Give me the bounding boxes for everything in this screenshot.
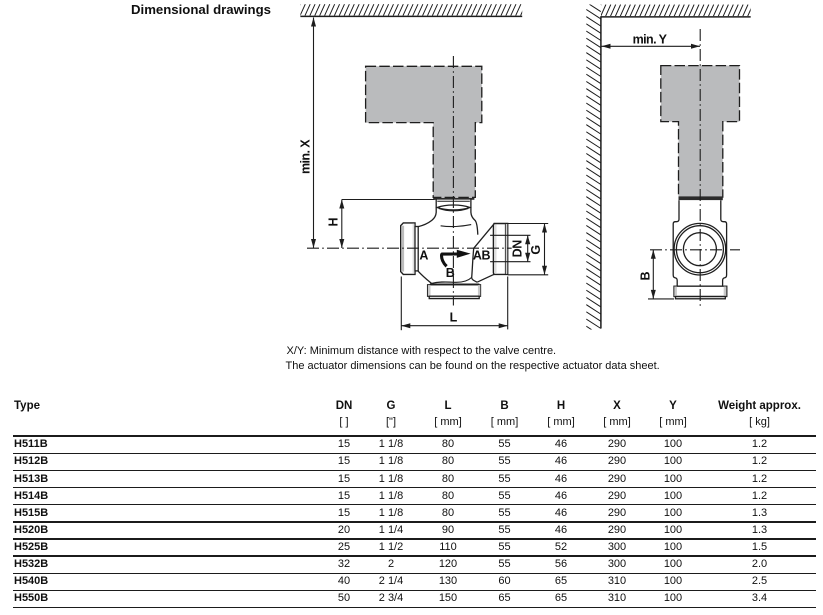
svg-text:B: B (638, 271, 652, 280)
svg-text:min. X: min. X (298, 139, 312, 174)
svg-text:AB: AB (473, 249, 491, 263)
svg-text:H: H (326, 217, 340, 226)
svg-text:L: L (450, 311, 458, 325)
svg-text:DN: DN (511, 240, 525, 258)
svg-text:min. Y: min. Y (633, 33, 668, 47)
svg-text:A: A (419, 248, 428, 262)
svg-text:B: B (446, 266, 455, 280)
svg-text:G: G (529, 245, 543, 255)
